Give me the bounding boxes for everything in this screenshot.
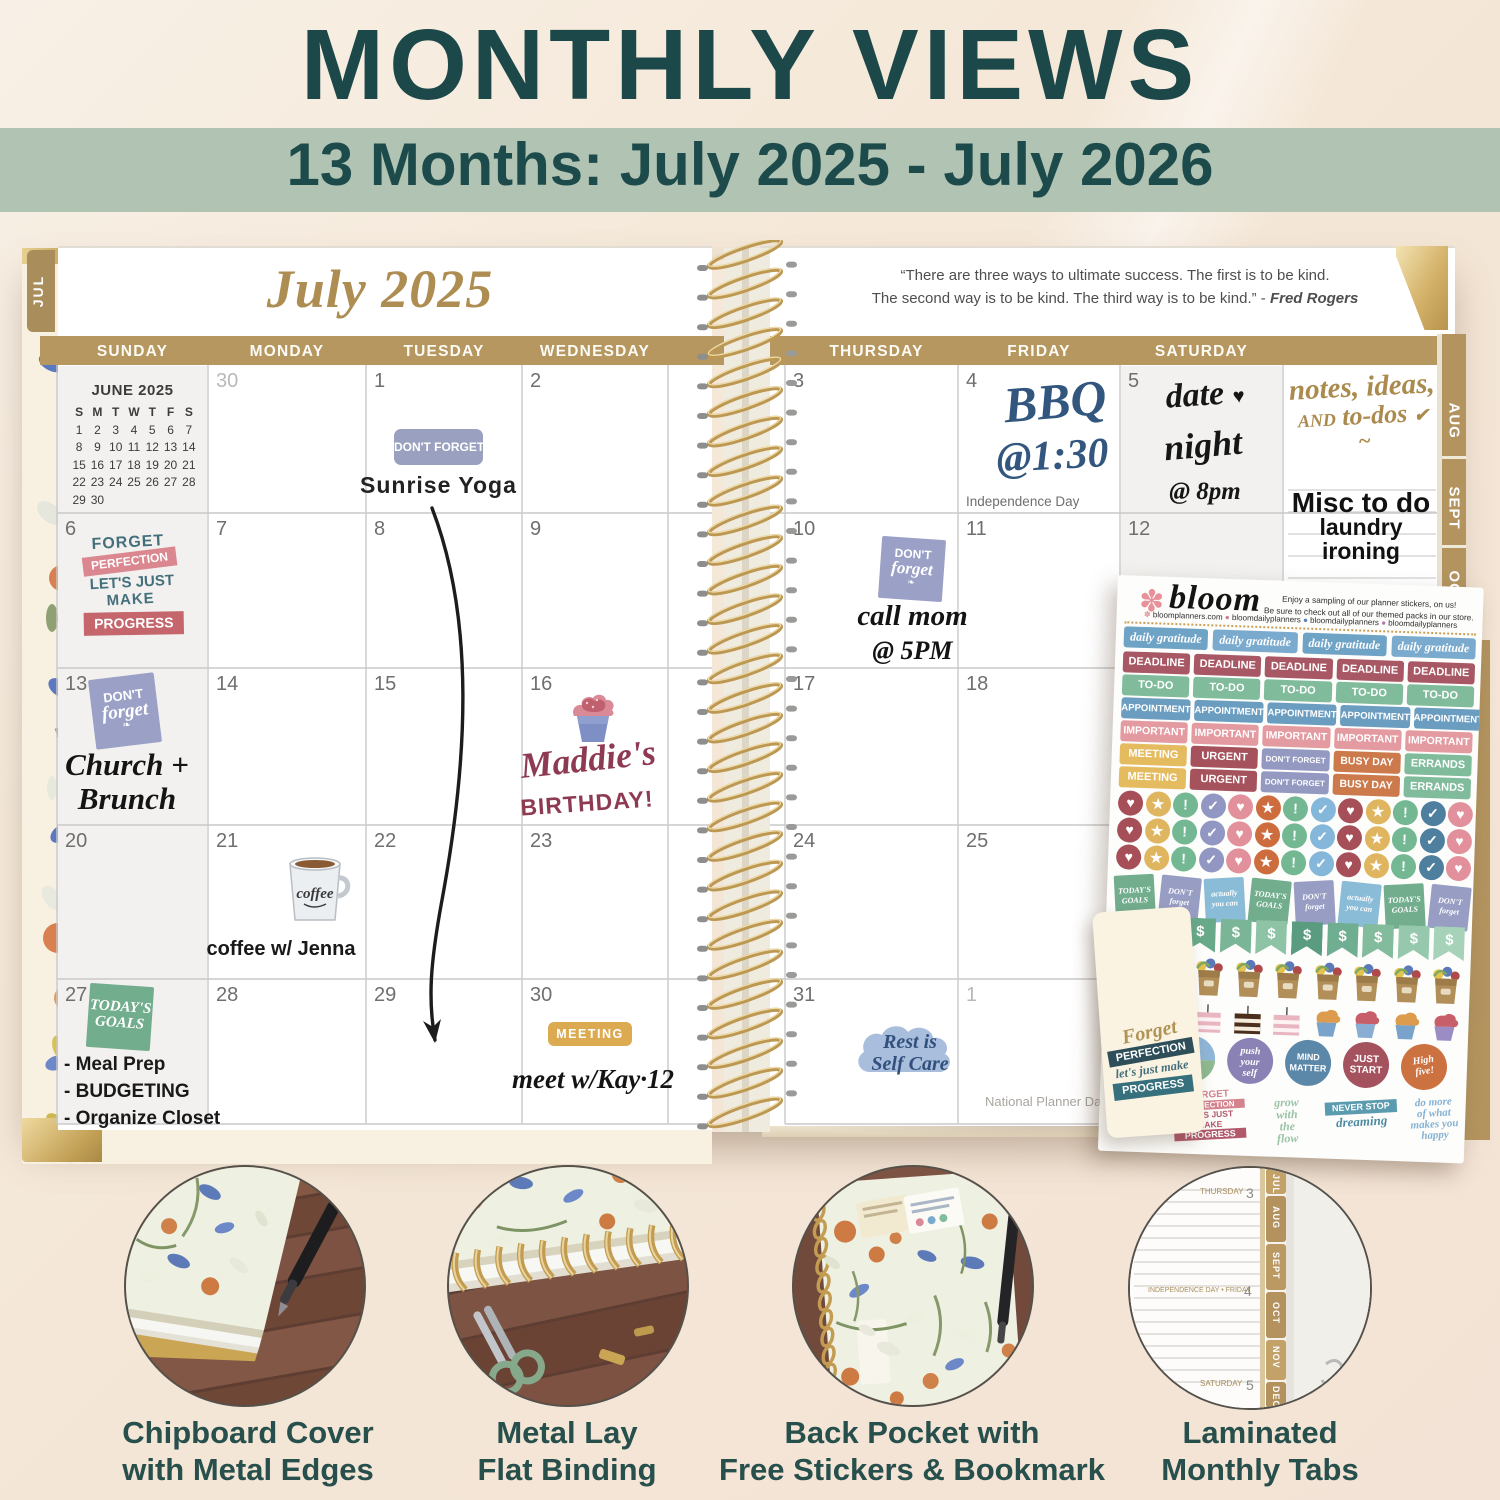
svg-text:3: 3: [1246, 1185, 1254, 1201]
svg-text:4: 4: [1244, 1283, 1252, 1299]
svg-text:INDEPENDENCE DAY • FRIDAY: INDEPENDENCE DAY • FRIDAY: [1148, 1287, 1251, 1294]
svg-text:JUL: JUL: [1271, 1174, 1281, 1194]
svg-text:Rest is: Rest is: [882, 1031, 937, 1053]
svg-text:SATURDAY: SATURDAY: [1200, 1379, 1243, 1388]
svg-text:DEC: DEC: [1271, 1386, 1281, 1408]
svg-text:OCT: OCT: [1271, 1302, 1281, 1324]
svg-text:NOV: NOV: [1271, 1346, 1281, 1369]
svg-text:coffee: coffee: [296, 886, 334, 902]
svg-text:THURSDAY: THURSDAY: [1200, 1187, 1244, 1196]
svg-text:Self Care: Self Care: [871, 1053, 948, 1075]
svg-text:5: 5: [1246, 1377, 1254, 1393]
svg-text:AUG: AUG: [1271, 1206, 1281, 1229]
svg-text:SEPT: SEPT: [1271, 1252, 1281, 1280]
